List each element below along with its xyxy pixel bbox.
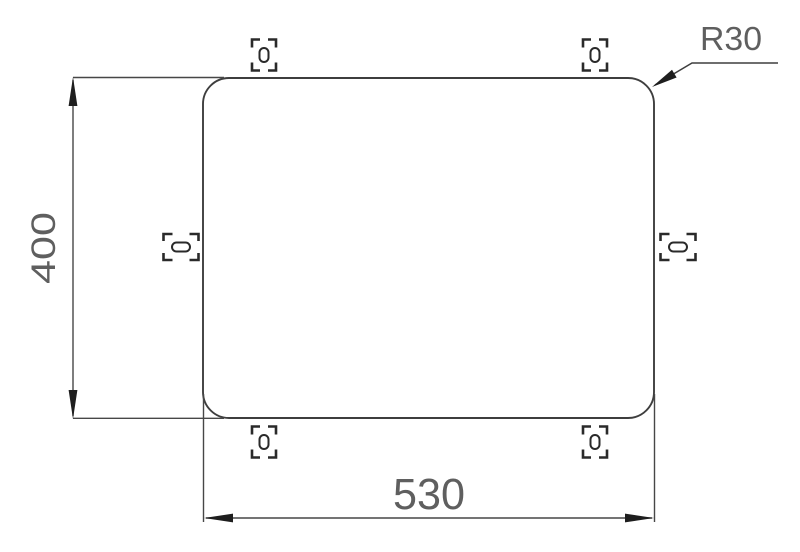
clip-slot-icon-left: [164, 234, 199, 260]
clip-slot-icon-bottom-left: [252, 427, 276, 458]
width-dimension-label: 530: [393, 470, 465, 519]
arrow-up-icon: [69, 77, 78, 106]
arrow-leader-icon: [652, 70, 677, 87]
clip-slot-icon-top-right: [583, 40, 607, 71]
panel-outline: [203, 78, 654, 418]
height-dimension-label: 400: [25, 212, 63, 284]
drawing-canvas: 400 530 R30: [0, 0, 800, 552]
corner-radius-label: R30: [700, 20, 762, 57]
clip-slot-icon-top-left: [252, 40, 276, 71]
height-dimension: 400: [25, 77, 224, 419]
arrow-down-icon: [69, 390, 78, 419]
technical-drawing: 400 530 R30: [0, 0, 800, 552]
clip-slot-icon-bottom-right: [583, 427, 607, 458]
radius-leader: R30: [652, 20, 778, 87]
clip-slot-icon-right: [661, 234, 696, 260]
arrow-right-icon: [625, 514, 654, 523]
fastener-symbols: [164, 40, 696, 458]
arrow-left-icon: [204, 514, 233, 523]
